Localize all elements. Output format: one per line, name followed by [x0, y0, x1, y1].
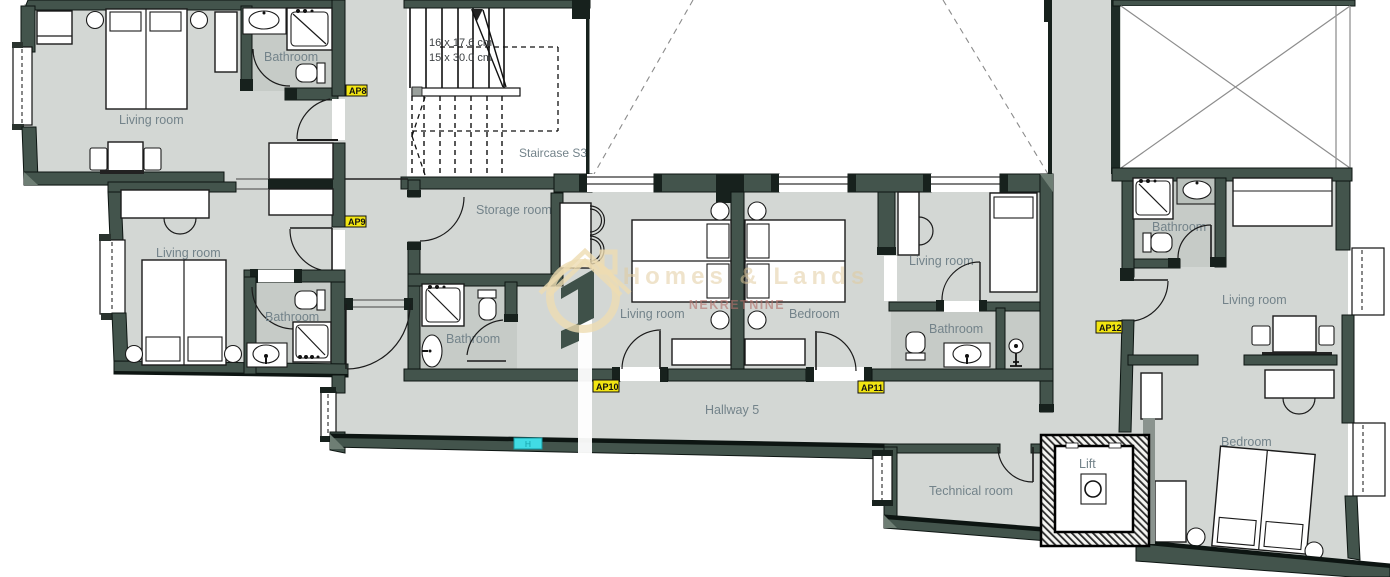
svg-text:Bedroom: Bedroom: [789, 307, 840, 321]
svg-text:H: H: [525, 439, 531, 449]
svg-text:Bathroom: Bathroom: [264, 50, 318, 64]
svg-text:Homes & Lands: Homes & Lands: [623, 263, 869, 290]
svg-text:Lift: Lift: [1079, 457, 1096, 471]
svg-text:Living room: Living room: [119, 113, 184, 127]
svg-text:16 x 17.6 cm: 16 x 17.6 cm: [429, 37, 492, 49]
svg-text:Staircase S3: Staircase S3: [519, 146, 587, 160]
svg-text:Technical room: Technical room: [929, 484, 1013, 498]
svg-text:AP8: AP8: [349, 86, 367, 96]
svg-text:Living room: Living room: [156, 246, 221, 260]
svg-text:AP10: AP10: [596, 382, 619, 392]
svg-text:NEKRETNINE: NEKRETNINE: [689, 298, 785, 312]
svg-text:15 x 30.0 cm: 15 x 30.0 cm: [429, 52, 492, 64]
svg-text:Living room: Living room: [1222, 293, 1287, 307]
svg-text:Bathroom: Bathroom: [929, 322, 983, 336]
svg-text:Living room: Living room: [620, 307, 685, 321]
svg-text:AP12: AP12: [1099, 323, 1122, 333]
svg-text:Hallway 5: Hallway 5: [705, 403, 759, 417]
svg-text:Storage room: Storage room: [476, 203, 552, 217]
svg-text:AP11: AP11: [861, 383, 883, 393]
svg-text:AP9: AP9: [348, 217, 366, 227]
